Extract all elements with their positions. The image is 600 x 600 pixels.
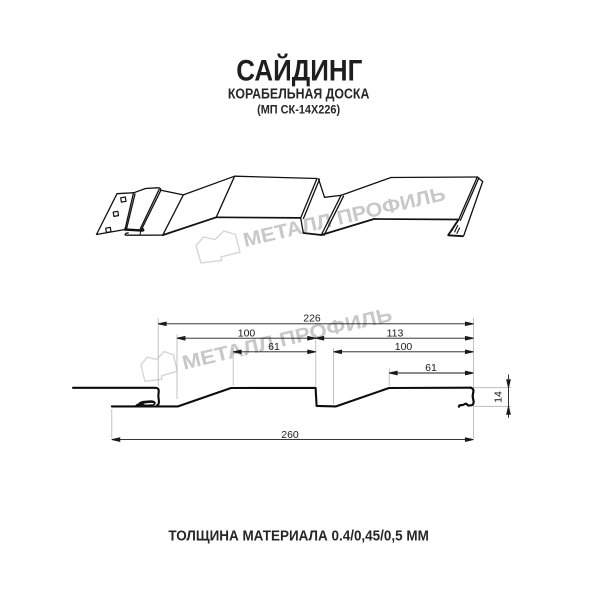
svg-text:113: 113 [387, 327, 404, 339]
svg-text:226: 226 [303, 313, 321, 325]
svg-text:100: 100 [395, 341, 413, 353]
svg-text:14: 14 [493, 391, 505, 403]
svg-text:260: 260 [281, 429, 299, 441]
svg-text:61: 61 [268, 341, 280, 353]
svg-text:ТОЛЩИНА МАТЕРИАЛА 0.4/0,45/0,5: ТОЛЩИНА МАТЕРИАЛА 0.4/0,45/0,5 ММ [168, 529, 429, 545]
svg-text:САЙДИНГ: САЙДИНГ [236, 54, 362, 88]
svg-text:(МП СК-14Х226): (МП СК-14Х226) [257, 105, 340, 117]
svg-text:100: 100 [238, 327, 256, 339]
svg-text:61: 61 [425, 362, 437, 374]
svg-text:КОРАБЕЛЬНАЯ ДОСКА: КОРАБЕЛЬНАЯ ДОСКА [228, 86, 370, 102]
